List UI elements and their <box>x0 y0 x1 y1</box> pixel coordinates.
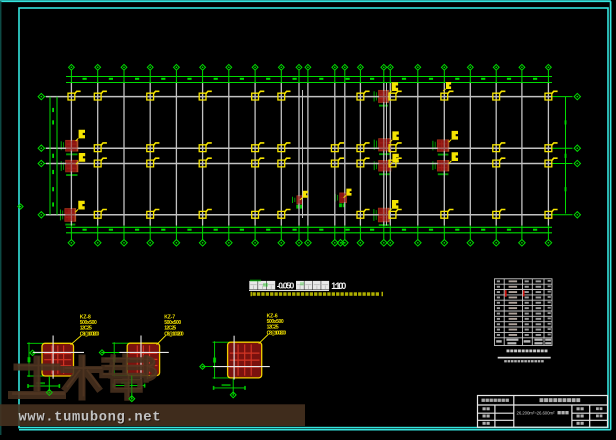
svg-text:26.200m²~26.600m²: 26.200m²~26.600m² <box>517 411 556 416</box>
svg-text:C8@100/200: C8@100/200 <box>164 331 184 337</box>
svg-text:C8@100/200: C8@100/200 <box>80 331 100 337</box>
svg-text:-0.050: -0.050 <box>277 281 295 291</box>
svg-text:C8@100/200: C8@100/200 <box>267 330 287 336</box>
svg-text:1:100: 1:100 <box>331 281 346 291</box>
svg-text:www.tumubong.net: www.tumubong.net <box>19 410 161 426</box>
